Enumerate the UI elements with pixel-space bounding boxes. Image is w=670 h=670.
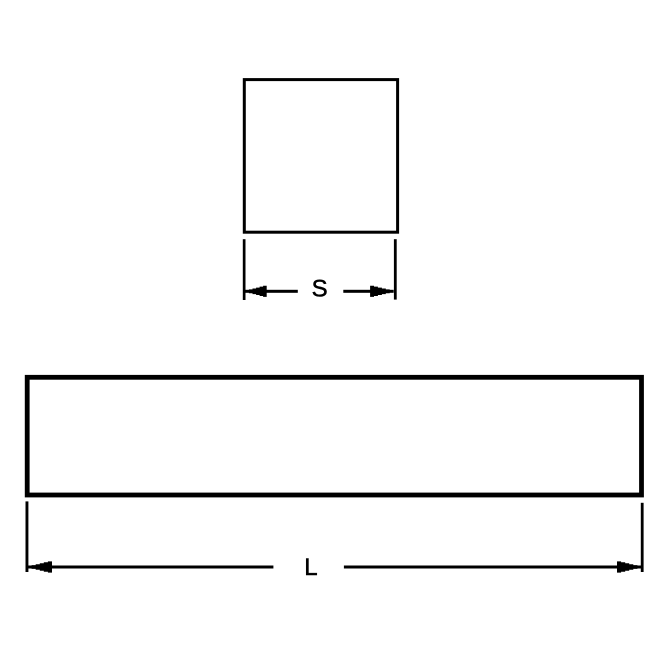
svg-text:L: L bbox=[304, 554, 317, 581]
svg-text:S: S bbox=[312, 276, 328, 303]
